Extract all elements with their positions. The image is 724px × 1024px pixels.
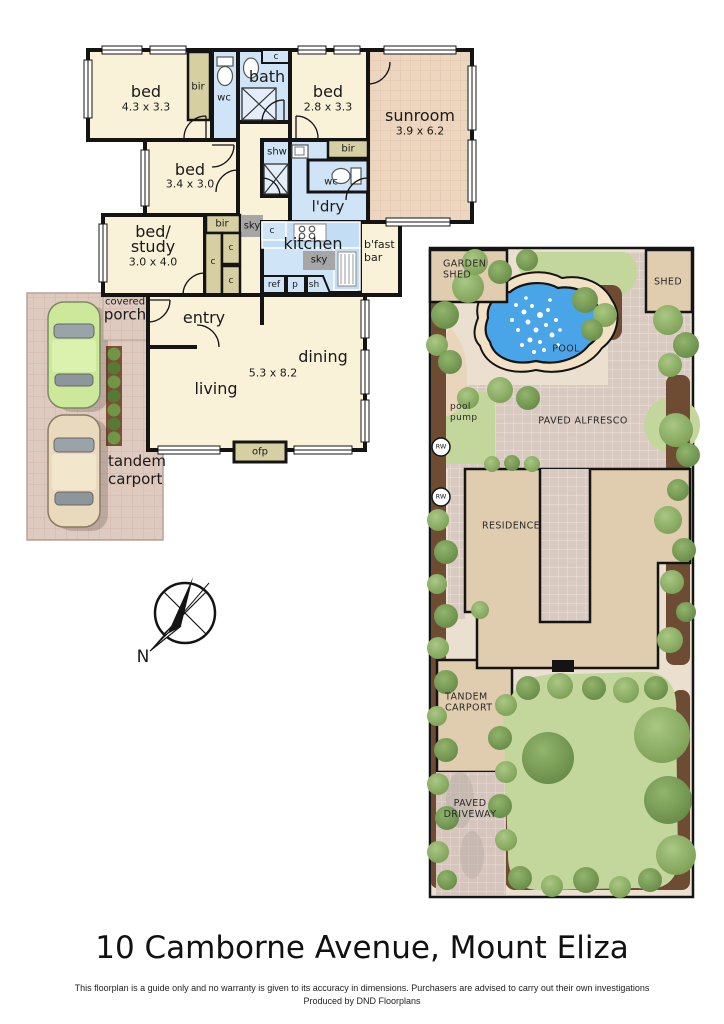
label-p: p <box>292 280 298 290</box>
label-shed: SHED <box>654 278 682 289</box>
label-bir: bir <box>341 143 354 155</box>
page-title: 10 Camborne Avenue, Mount Eliza <box>0 930 724 966</box>
label-c: c <box>229 276 234 286</box>
label-pool-pump: pool pump <box>450 402 480 424</box>
label-sky: sky <box>311 254 328 266</box>
dims-bed3: 3.4 x 3.0 <box>166 179 215 192</box>
dims-bed1: 4.3 x 3.3 <box>122 102 171 115</box>
label-bath: bath <box>249 68 285 86</box>
compass-icon <box>150 577 215 651</box>
floorplan-graphics <box>0 0 724 1024</box>
label-sunroom: sunroom <box>385 107 455 125</box>
label-tandem-carport: tandem carport <box>108 452 178 488</box>
label-kitchen: kitchen <box>284 235 343 253</box>
doorstep <box>552 660 574 672</box>
dims-bed2: 2.8 x 3.3 <box>304 102 353 115</box>
label-paved-driveway: PAVED DRIVEWAY <box>440 799 500 821</box>
produced-by-text: Produced by DND Floorplans <box>0 996 724 1006</box>
label-shw: shw <box>267 146 287 158</box>
dims-sunroom: 3.9 x 6.2 <box>396 126 445 139</box>
label-sh: sh <box>309 280 319 290</box>
floorplan-page: bed 4.3 x 3.3 bir wc bath c bed 2.8 x 3.… <box>0 0 724 1024</box>
label-living: living <box>194 380 237 398</box>
car-icon <box>48 302 108 412</box>
label-dining: dining <box>298 348 347 366</box>
toilet-icon <box>217 57 233 86</box>
disclaimer-text: This floorplan is a guide only and no wa… <box>0 983 724 993</box>
label-garden-shed: GARDEN SHED <box>443 259 498 282</box>
label-bir: bir <box>191 81 204 93</box>
dims-living: 5.3 x 8.2 <box>249 368 298 381</box>
courtyard <box>540 469 590 622</box>
label-porch: porch <box>104 306 146 323</box>
label-c: c <box>274 52 279 62</box>
lawn-bottom <box>503 672 678 890</box>
label-sky: sky <box>244 220 261 232</box>
label-bir: bir <box>215 218 228 230</box>
label-paved-alfresco: PAVED ALFRESCO <box>538 417 627 428</box>
label-ref: ref <box>268 280 280 290</box>
label-bed2: bed <box>313 83 343 101</box>
label-bed1: bed <box>131 83 161 101</box>
label-entry: entry <box>183 309 225 327</box>
label-wc: wc <box>324 176 338 188</box>
label-residence: RESIDENCE <box>482 522 540 533</box>
label-site-carport: TANDEM CARPORT <box>445 692 503 715</box>
label-c: c <box>211 257 216 267</box>
car-icon <box>48 415 108 531</box>
dims-bed-study: 3.0 x 4.0 <box>129 257 178 270</box>
compass-north-label: N <box>137 648 150 668</box>
label-ofp: ofp <box>252 446 268 458</box>
label-bed-study-2: study <box>131 238 175 256</box>
label-bed3: bed <box>175 161 205 179</box>
label-rw: RW <box>436 443 447 450</box>
label-rw: RW <box>436 493 447 500</box>
label-wc: wc <box>217 92 231 104</box>
label-c: c <box>229 243 234 253</box>
label-pool: POOL <box>552 345 580 356</box>
trough-icon <box>292 145 308 158</box>
label-bfast-bar: b'fast bar <box>364 238 398 264</box>
label-c: c <box>270 226 275 236</box>
label-ldry: l'dry <box>312 198 345 215</box>
